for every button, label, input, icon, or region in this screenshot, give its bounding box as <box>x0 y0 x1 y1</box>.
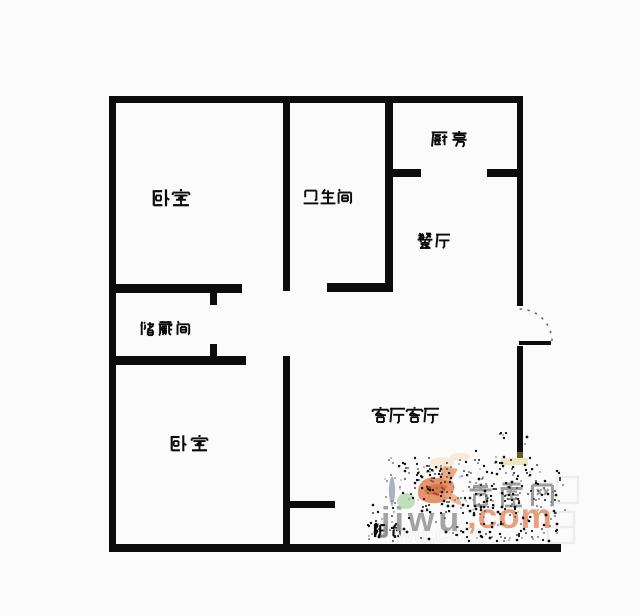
svg-text:jiwu: jiwu <box>380 501 463 539</box>
svg-text:,com: ,com <box>467 497 553 536</box>
